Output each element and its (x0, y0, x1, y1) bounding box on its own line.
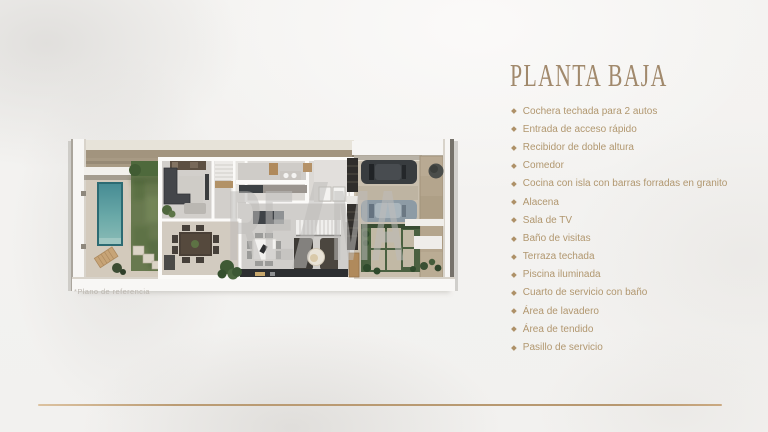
svg-text:MA: MA (331, 170, 405, 282)
svg-text:RE: RE (227, 170, 295, 282)
